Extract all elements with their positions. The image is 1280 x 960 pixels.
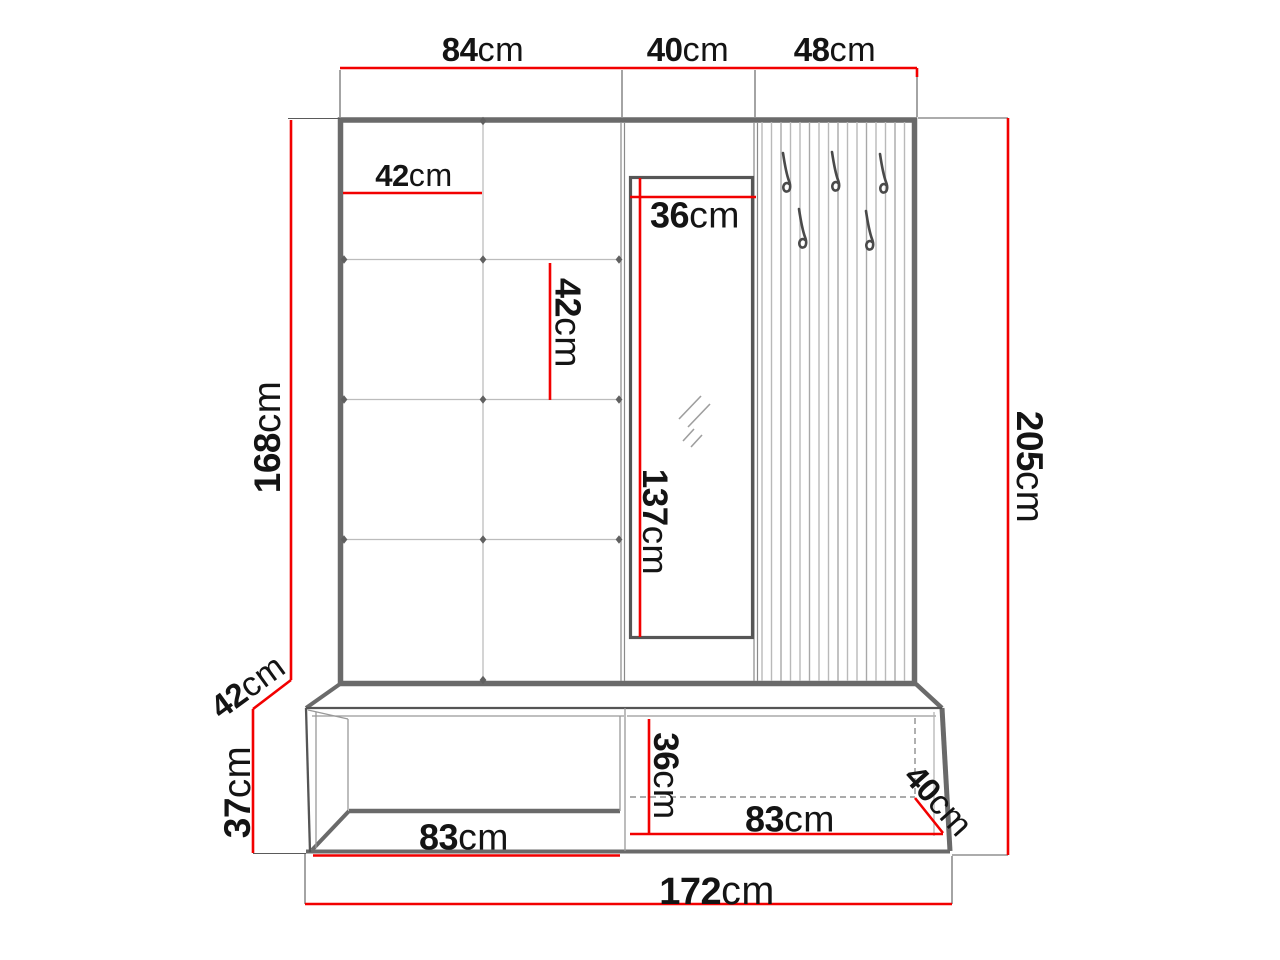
dim-label-tile-width: 42cm xyxy=(375,159,452,191)
dim-label-tile-height: 42cm xyxy=(549,278,586,368)
dim-label-top-section-1: 84cm xyxy=(442,33,524,67)
dim-label-top-section-3: 48cm xyxy=(794,33,876,67)
dim-label-top-section-2: 40cm xyxy=(647,33,729,67)
bench-outline-medium xyxy=(306,708,942,852)
dim-label-mirror-height: 137cm xyxy=(637,469,673,575)
dim-label-mirror-width: 36cm xyxy=(650,196,740,233)
furniture-dimension-diagram: 84cm 40cm 48cm 168cm 205cm 42cm 42cm 36c… xyxy=(0,0,1280,960)
dim-label-bench-height: 37cm xyxy=(219,746,257,838)
dim-label-total-height: 205cm xyxy=(1010,411,1048,524)
dim-label-bench-inner-height: 36cm xyxy=(648,732,684,819)
dim-label-panel-height: 168cm xyxy=(249,381,287,494)
dim-label-bench-right-width: 83cm xyxy=(745,800,835,837)
dim-label-total-width: 172cm xyxy=(659,872,775,912)
dim-label-bench-left-width: 83cm xyxy=(419,818,509,855)
bench-interior-lines xyxy=(308,708,936,851)
